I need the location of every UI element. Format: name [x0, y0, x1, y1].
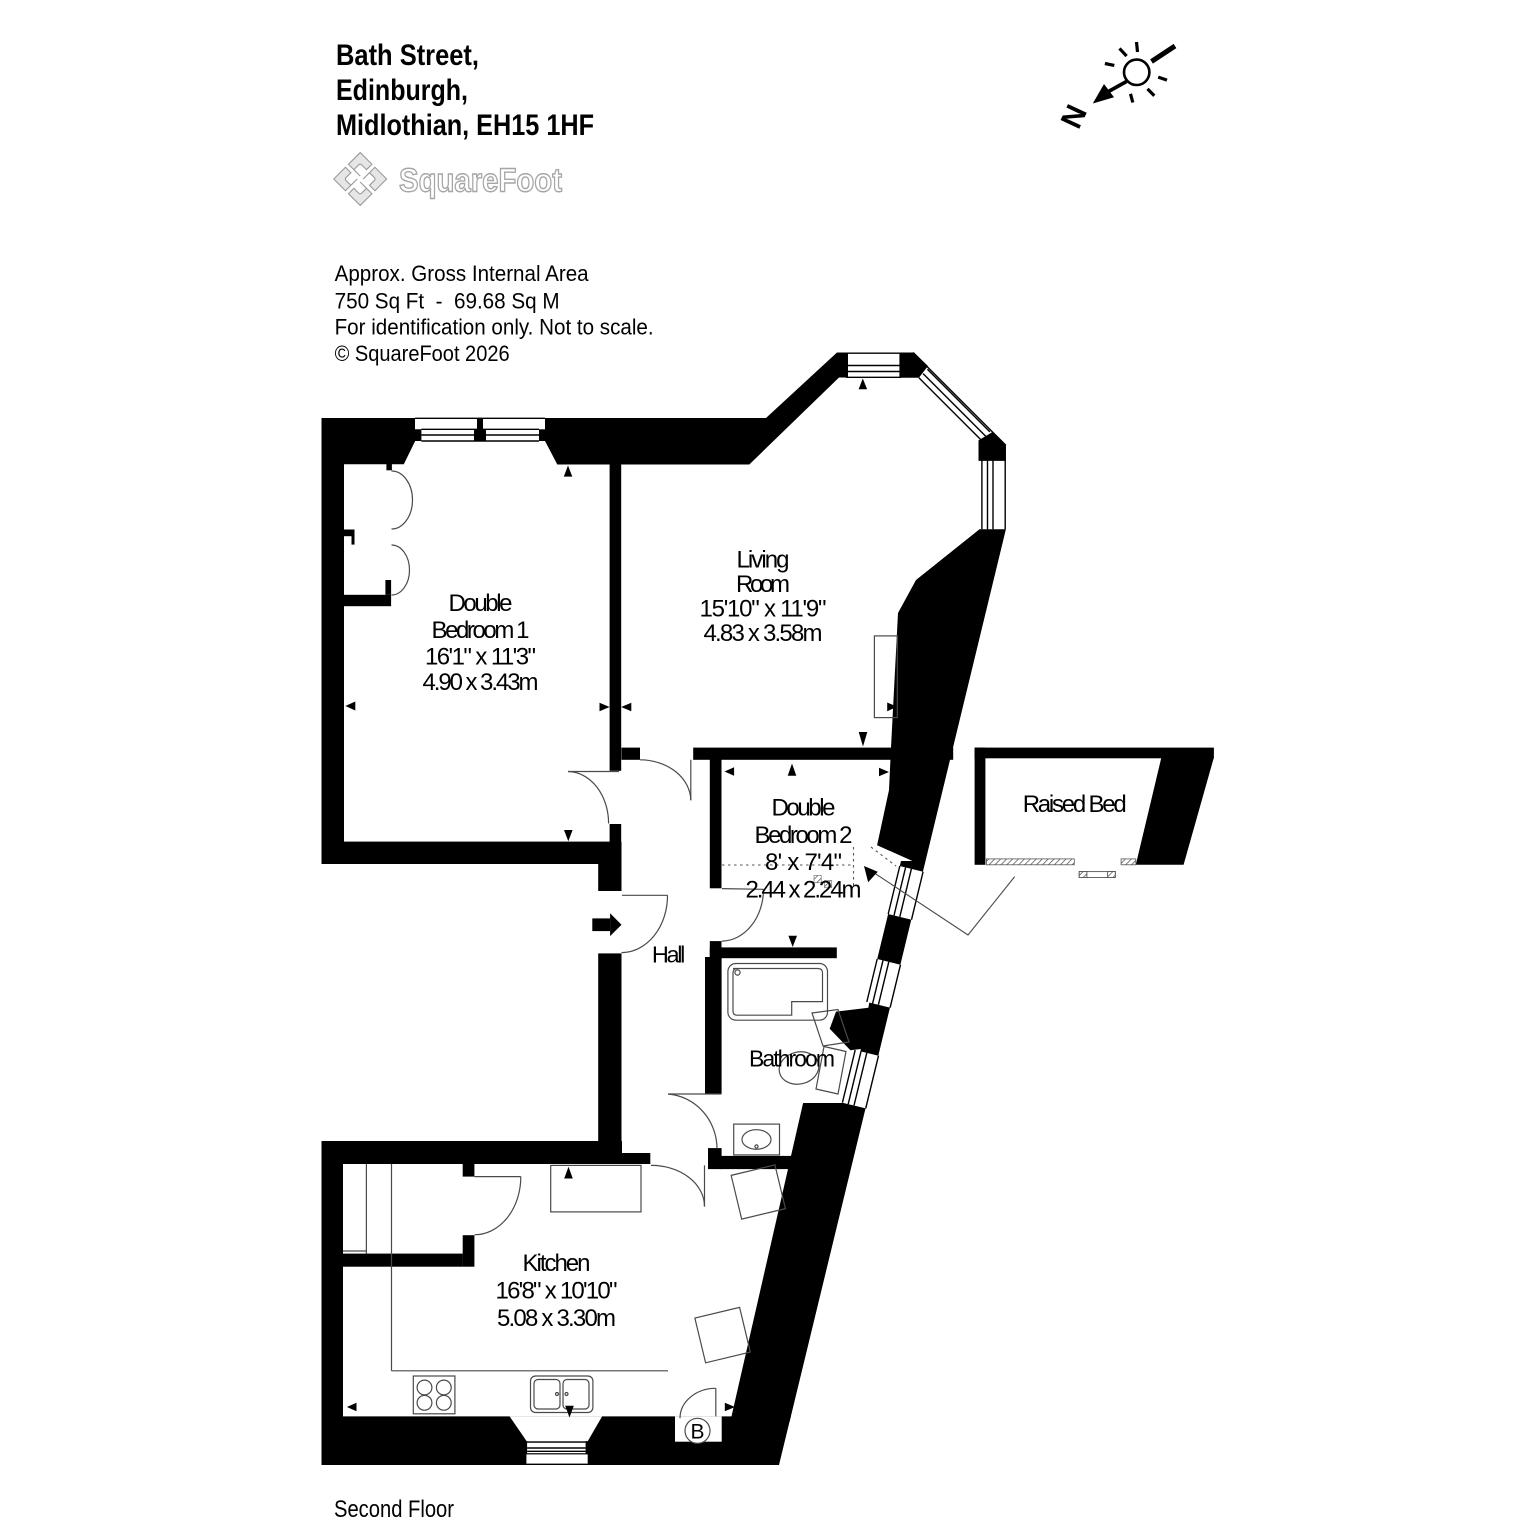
svg-text:Bedroom 2: Bedroom 2: [755, 822, 853, 849]
svg-text:SquareFoot: SquareFoot: [399, 162, 562, 199]
svg-text:Living: Living: [737, 547, 790, 574]
svg-text:© SquareFoot 2026: © SquareFoot 2026: [335, 341, 510, 366]
svg-text:16'8" x 10'10": 16'8" x 10'10": [496, 1278, 618, 1305]
svg-text:15'10" x 11'9": 15'10" x 11'9": [700, 596, 827, 623]
svg-text:Double: Double: [772, 795, 836, 822]
svg-text:Double: Double: [449, 590, 513, 617]
svg-text:B: B: [690, 1421, 704, 1444]
svg-text:For identification only. Not t: For identification only. Not to scale.: [335, 315, 654, 340]
svg-text:2.44 x 2.24m: 2.44 x 2.24m: [746, 876, 862, 903]
svg-text:Bath Street,: Bath Street,: [336, 39, 479, 72]
svg-text:Bedroom 1: Bedroom 1: [432, 617, 530, 644]
svg-text:4.83 x 3.58m: 4.83 x 3.58m: [704, 620, 823, 647]
svg-text:4.90 x 3.43m: 4.90 x 3.43m: [423, 669, 539, 696]
svg-text:16'1" x 11'3": 16'1" x 11'3": [425, 644, 536, 671]
svg-text:Edinburgh,: Edinburgh,: [336, 74, 468, 107]
svg-text:Raised Bed: Raised Bed: [1023, 791, 1127, 818]
svg-text:Room: Room: [736, 571, 790, 598]
svg-text:8' x 7'4": 8' x 7'4": [765, 849, 842, 876]
svg-text:750 Sq Ft - 69.68 Sq M: 750 Sq Ft - 69.68 Sq M: [335, 289, 560, 314]
svg-text:Kitchen: Kitchen: [523, 1250, 591, 1277]
svg-text:Hall: Hall: [652, 941, 686, 967]
svg-text:5.08 x 3.30m: 5.08 x 3.30m: [497, 1305, 616, 1332]
svg-text:Approx. Gross Internal Area: Approx. Gross Internal Area: [335, 261, 590, 286]
svg-text:Second Floor: Second Floor: [334, 1496, 454, 1523]
svg-text:Midlothian, EH15 1HF: Midlothian, EH15 1HF: [336, 109, 594, 142]
svg-text:Bathroom: Bathroom: [749, 1045, 835, 1071]
